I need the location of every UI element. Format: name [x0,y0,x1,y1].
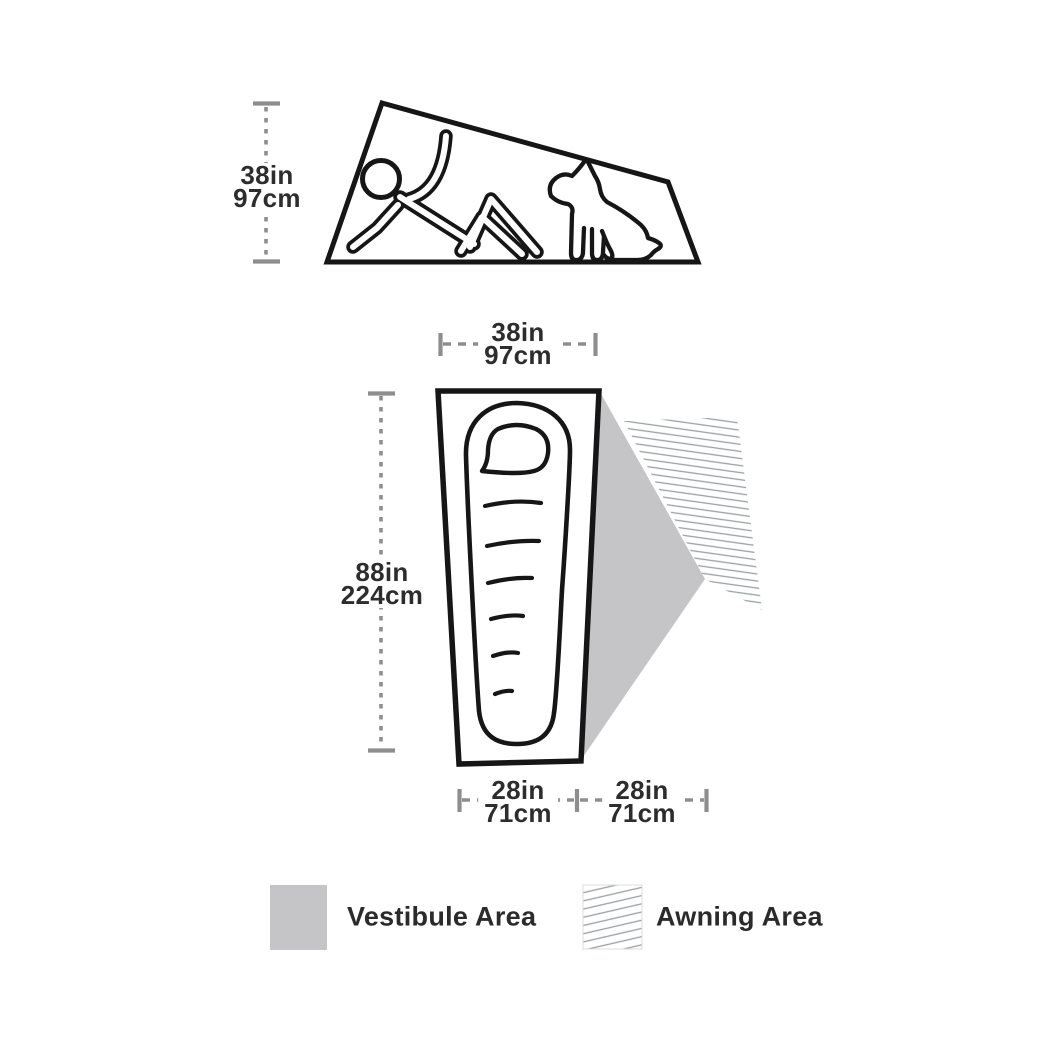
side-height-metric: 97cm [233,187,301,210]
diagram-artwork [0,0,1050,1050]
length-label: 88in 224cm [335,560,429,608]
floor-width-metric: 71cm [484,802,552,825]
vestibule-width-label: 28in 71cm [602,778,682,826]
top-width-label: 38in 97cm [478,320,558,368]
top-width-metric: 97cm [484,344,552,367]
legend-label-vestibule: Vestibule Area [347,902,536,933]
person-head [363,161,400,198]
side-height-label: 38in 97cm [227,163,307,211]
sleeping-bag-outline [466,403,570,744]
side-view [253,103,698,262]
floor-width-label: 28in 71cm [478,778,558,826]
tent-dimensions-diagram: 38in 97cm 38in 97cm 88in 224cm 28in 71cm… [0,0,1050,1050]
awning-swatch [583,885,642,949]
vestibule-width-metric: 71cm [608,802,676,825]
sleeping-bag [466,403,570,744]
length-metric: 224cm [341,584,423,607]
legend-label-awning: Awning Area [656,902,823,933]
vestibule-swatch [270,885,327,950]
